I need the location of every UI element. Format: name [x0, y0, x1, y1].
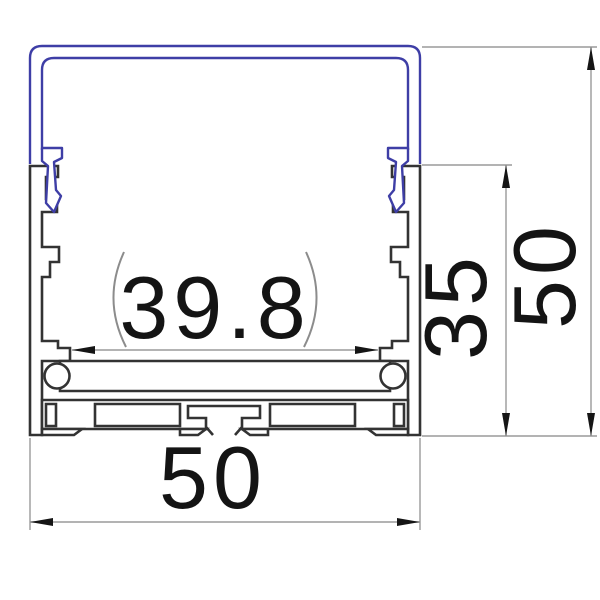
arrow-up-overall-height	[587, 47, 595, 70]
screw-boss-right	[381, 364, 406, 389]
screw-boss-left	[45, 364, 70, 389]
arrow-down-overall-height	[587, 413, 595, 436]
base-chamber-right	[270, 404, 355, 426]
drawing-canvas: 39.8 50 35 50	[0, 0, 600, 600]
arrow-right-inner-width	[355, 346, 378, 354]
arrow-down-inner-height	[502, 413, 510, 436]
base-groove-left	[46, 404, 56, 426]
arrow-left-overall-width	[30, 518, 53, 526]
foot-right-corner	[368, 429, 408, 435]
profile-cross-section-drawing: 39.8 50 35 50	[0, 0, 600, 600]
arrow-up-inner-height	[502, 165, 510, 188]
arrow-left-inner-width	[72, 346, 95, 354]
arrow-right-overall-width	[397, 518, 420, 526]
foot-left-corner	[42, 429, 82, 435]
diffuser-cover	[30, 46, 420, 212]
cover-outer-line	[30, 46, 420, 164]
dim-overall-height-label: 50	[495, 221, 594, 329]
dim-overall-width-label: 50	[159, 428, 267, 527]
base-groove-right	[394, 404, 404, 426]
base-chamber-left	[95, 404, 180, 426]
cover-inner-line	[42, 58, 408, 150]
dim-inner-width-label: 39.8	[119, 258, 310, 357]
dim-inner-height-label: 35	[406, 252, 505, 360]
pcb-platform	[60, 361, 390, 391]
